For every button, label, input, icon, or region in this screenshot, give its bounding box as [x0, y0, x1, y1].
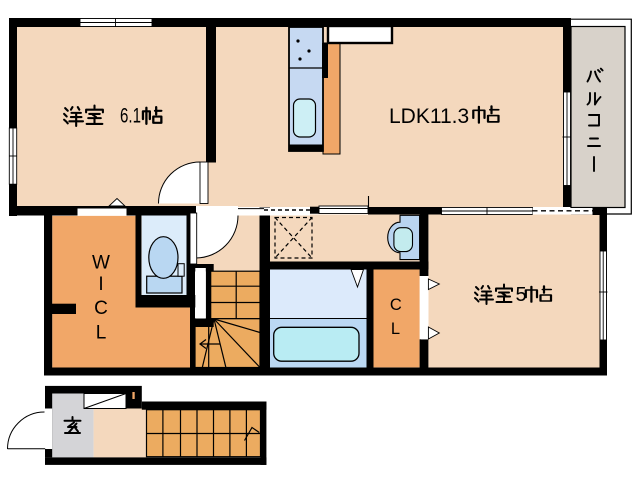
svg-text:I: I	[98, 274, 103, 295]
svg-text:L: L	[96, 323, 107, 344]
svg-text:C: C	[94, 298, 108, 319]
svg-text:6.1: 6.1	[120, 105, 141, 128]
svg-text:W: W	[92, 253, 110, 274]
svg-text:C: C	[390, 296, 402, 314]
svg-text:L: L	[391, 320, 400, 338]
svg-text:LDK11.3: LDK11.3	[389, 105, 469, 128]
